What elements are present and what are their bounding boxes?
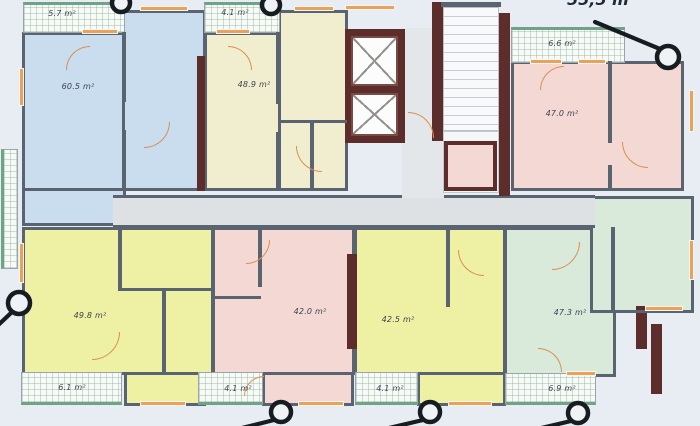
callout-marker[interactable]	[262, 0, 280, 14]
callout-marker[interactable]	[420, 402, 440, 422]
callout-line	[595, 22, 660, 49]
callout-marker[interactable]	[112, 0, 130, 12]
callout-line	[372, 420, 423, 426]
callout-marker[interactable]	[568, 403, 588, 423]
callout-line	[516, 421, 571, 426]
callout-line	[226, 420, 274, 426]
callout-marker[interactable]	[8, 292, 30, 314]
callout-line	[0, 312, 12, 331]
callout-marker[interactable]	[271, 402, 291, 422]
callout-marker[interactable]	[657, 46, 679, 68]
floor-plan: 60.5 m² 48.9 m² 47.0 m² 49.8 m² 42.0 m² …	[0, 0, 700, 426]
callout-overlay	[0, 0, 700, 426]
